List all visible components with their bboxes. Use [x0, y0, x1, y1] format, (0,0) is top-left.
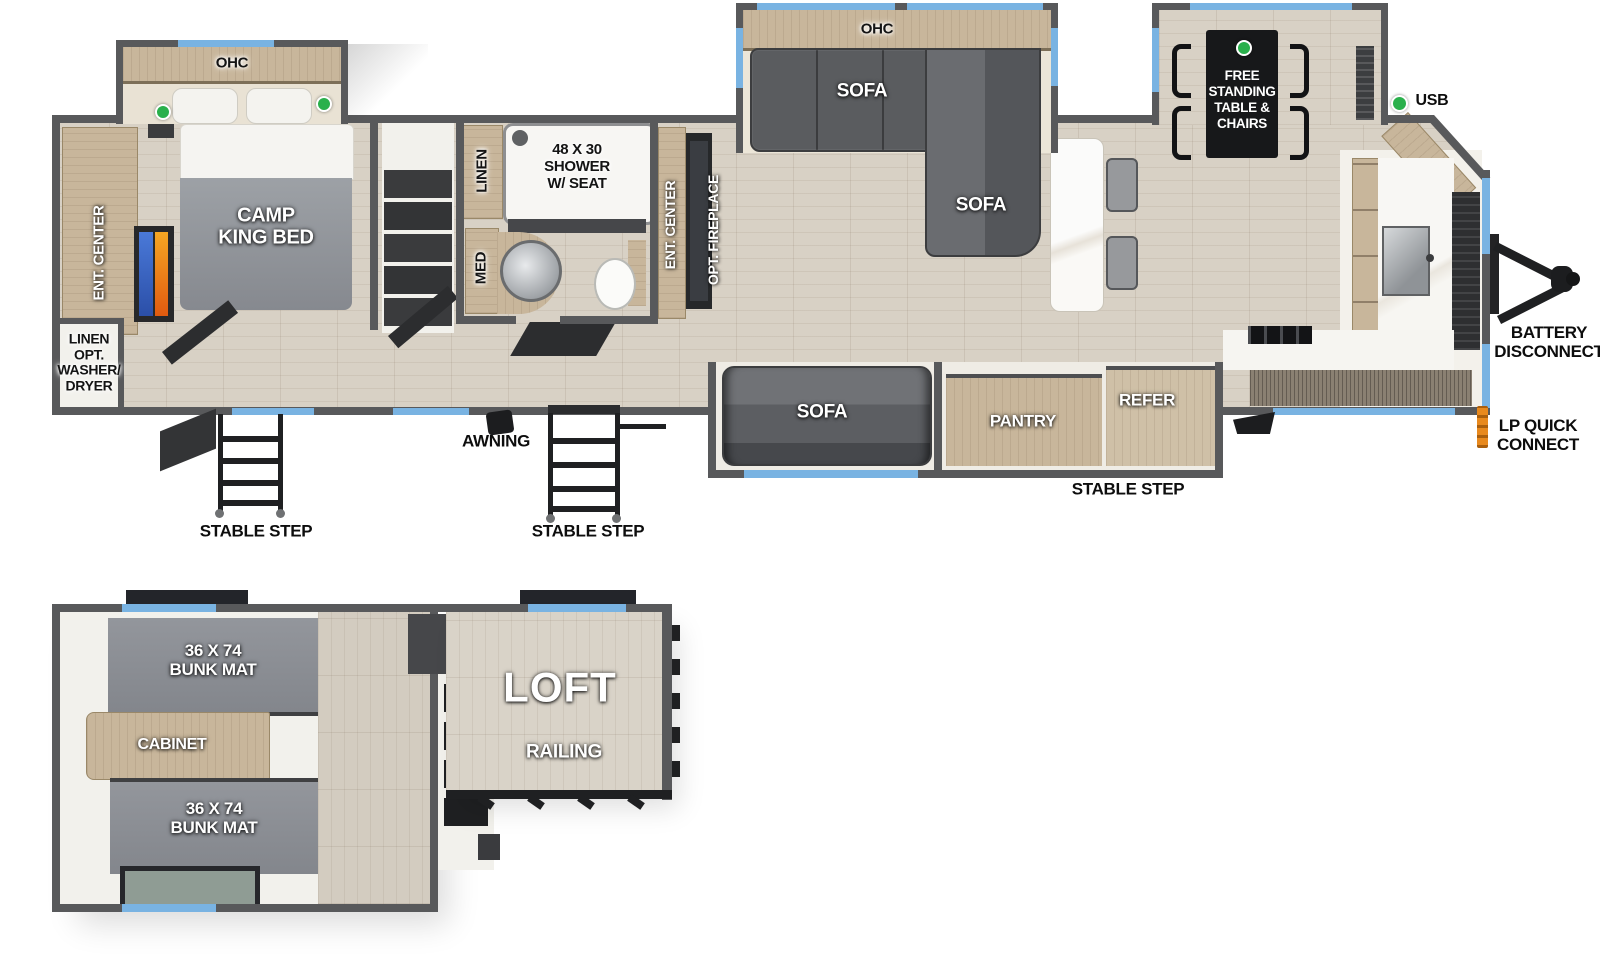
indicator-light: [1236, 40, 1252, 56]
bed-slide-shadow: [348, 44, 428, 120]
wall: [934, 362, 942, 470]
window: [178, 40, 274, 47]
med-label: MED: [473, 252, 490, 284]
shower-head: [512, 130, 528, 146]
opt-fireplace-label: OPT. FIREPLACE: [705, 175, 721, 285]
awning-label: AWNING: [462, 431, 530, 450]
step-wheel: [276, 509, 285, 518]
sofa-rear-label: SOFA: [837, 80, 888, 101]
kitchen-tall-cabinet: [1352, 158, 1380, 348]
step-wheel: [215, 509, 224, 518]
living-ent-center-label: ENT. CENTER: [662, 181, 678, 270]
pillow: [246, 88, 312, 124]
indicator-light: [316, 96, 332, 112]
wall: [52, 904, 438, 912]
wall: [341, 40, 348, 124]
stable-step-rear-label: STABLE STEP: [200, 521, 313, 540]
indicator-light: [155, 104, 171, 120]
wall: [1215, 362, 1223, 478]
step-rung: [223, 480, 278, 486]
pantry-label: PANTRY: [990, 411, 1056, 430]
usb-label: USB: [1416, 92, 1449, 110]
stable-step-mid-label: STABLE STEP: [532, 521, 645, 540]
window-blinds: [1356, 46, 1374, 120]
window: [1051, 28, 1058, 86]
floorplan-canvas: OHC CAMP KING BED ENT. CENTER LINEN OPT.…: [0, 0, 1600, 959]
bunk-rear-label: 36 X 74 BUNK MAT: [170, 641, 257, 679]
bunk-front-label: 36 X 74 BUNK MAT: [171, 799, 258, 837]
refer-label: REFER: [1119, 390, 1175, 409]
wall: [1381, 3, 1388, 125]
dining-chair: [1172, 44, 1191, 98]
railing-post: [672, 693, 680, 709]
window: [393, 408, 469, 415]
step-rung: [223, 436, 278, 442]
window: [907, 3, 1043, 10]
ohc-bed-label: OHC: [216, 56, 248, 73]
wall: [370, 123, 378, 330]
step-rung: [553, 462, 615, 468]
bed-sheet: [180, 124, 354, 180]
lp-quick-connect-label: LP QUICK CONNECT: [1497, 416, 1579, 454]
window: [122, 604, 216, 612]
cooktop: [1248, 326, 1312, 344]
free-standing-table-label: FREE STANDING TABLE & CHAIRS: [1208, 68, 1275, 132]
sofa-chaise-label: SOFA: [956, 194, 1007, 215]
loft-label: LOFT: [503, 663, 617, 710]
wall: [116, 40, 123, 124]
door-sill: [232, 408, 314, 415]
window: [1273, 408, 1455, 415]
battery-disconnect-label: BATTERY DISCONNECT: [1494, 323, 1600, 361]
lp-connector: [1477, 406, 1488, 448]
railing-post: [672, 761, 680, 777]
wall: [456, 316, 516, 324]
railing-post: [672, 659, 680, 675]
wall: [708, 362, 716, 478]
window: [1482, 178, 1490, 254]
toilet: [594, 258, 636, 310]
shower-label: 48 X 30 SHOWER W/ SEAT: [544, 142, 610, 192]
sofa-slide-ohc: [743, 10, 1051, 51]
counter-top-wood: [1250, 370, 1472, 406]
fireplace-screen: [139, 232, 153, 316]
refer: [1106, 366, 1215, 466]
dining-chair: [1172, 106, 1191, 160]
sofa-front-label: SOFA: [797, 401, 848, 422]
stair-tread: [384, 234, 452, 262]
fireplace-flame: [155, 232, 168, 316]
window: [122, 904, 216, 912]
wall: [52, 604, 438, 612]
kitchen-sink: [1382, 226, 1430, 296]
usb-indicator: [1391, 95, 1408, 112]
wall: [52, 604, 60, 912]
wall: [560, 316, 658, 324]
wall: [456, 123, 464, 323]
pillow: [172, 88, 238, 124]
camp-king-bed-label: CAMP KING BED: [218, 205, 313, 250]
step-rung: [553, 506, 615, 512]
entry-platform: [160, 409, 216, 472]
cabinet-label: CABINET: [137, 736, 206, 754]
window: [1482, 344, 1490, 408]
bath-sink: [500, 240, 562, 302]
island-stool: [1106, 236, 1138, 290]
dining-chair: [1290, 106, 1309, 160]
railing-post: [672, 625, 680, 641]
sofa-chaise: [925, 48, 1041, 257]
loft-stair-newel: [478, 834, 500, 860]
island-stool: [1106, 158, 1138, 212]
linen-washer-label: LINEN OPT. WASHER/ DRYER: [57, 332, 120, 395]
step-rung: [553, 438, 615, 444]
stable-step-front-label: STABLE STEP: [1072, 479, 1185, 498]
kitchen-island: [1050, 138, 1104, 312]
hitch-ball-socket: [1566, 272, 1580, 286]
stair-tread: [384, 170, 452, 198]
window: [528, 604, 626, 612]
stair-tread: [384, 202, 452, 230]
linen-label: LINEN: [474, 149, 491, 193]
dining-chair: [1290, 44, 1309, 98]
window: [1190, 3, 1352, 10]
window: [1152, 28, 1159, 92]
awning-bracket: [1233, 412, 1275, 434]
shower-bench: [508, 219, 646, 233]
kitchen-faucet: [1426, 254, 1434, 262]
step-rung: [223, 458, 278, 464]
ohc-sofa-label: OHC: [861, 22, 893, 39]
window: [757, 3, 895, 10]
railing-post: [672, 727, 680, 743]
wall: [662, 604, 672, 800]
step-rung: [553, 486, 615, 492]
door-threshold: [548, 405, 620, 414]
window: [744, 470, 918, 478]
step-rung: [223, 500, 278, 506]
window: [736, 28, 743, 88]
step-handrail: [618, 424, 666, 429]
bedroom-ent-center-label: ENT. CENTER: [91, 205, 108, 300]
wall: [52, 318, 124, 324]
wall: [650, 123, 658, 323]
step-rail: [278, 414, 283, 512]
kitchen-appliance-column: [1452, 192, 1480, 350]
railing-label: RAILING: [526, 741, 602, 762]
